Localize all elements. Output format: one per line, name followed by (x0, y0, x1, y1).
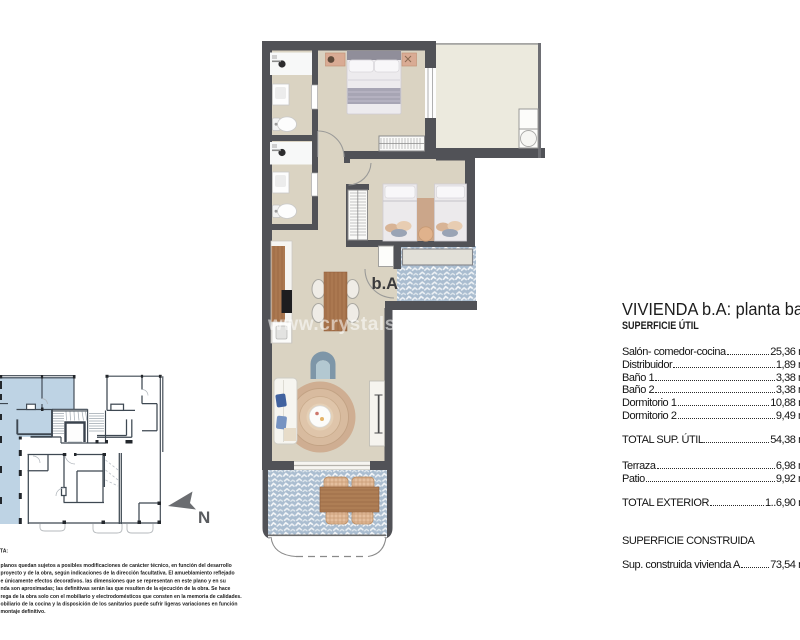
svg-text:N: N (198, 508, 210, 527)
svg-text:nda son aproximadas; las defin: nda son aproximadas; las definitivas ser… (1, 586, 231, 592)
svg-text:obiliario de la cocina y la di: obiliario de la cocina y la disposición … (1, 602, 238, 608)
svg-text:montaje definitivo.: montaje definitivo. (1, 609, 47, 615)
svg-text:rega de la obra solo con el mo: rega de la obra solo con el mobiliario y… (1, 594, 243, 600)
svg-text:TA:: TA: (0, 549, 8, 555)
svg-text:planos quedan sujetos a posibl: planos quedan sujetos a posibles modific… (1, 563, 232, 569)
svg-text:b.A: b.A (372, 275, 399, 293)
svg-text:e únicamente efectos decorativ: e únicamente efectos decorativos. las di… (1, 578, 226, 584)
svg-text:proyecto y de la obra, según i: proyecto y de la obra, según indicacione… (1, 571, 235, 577)
